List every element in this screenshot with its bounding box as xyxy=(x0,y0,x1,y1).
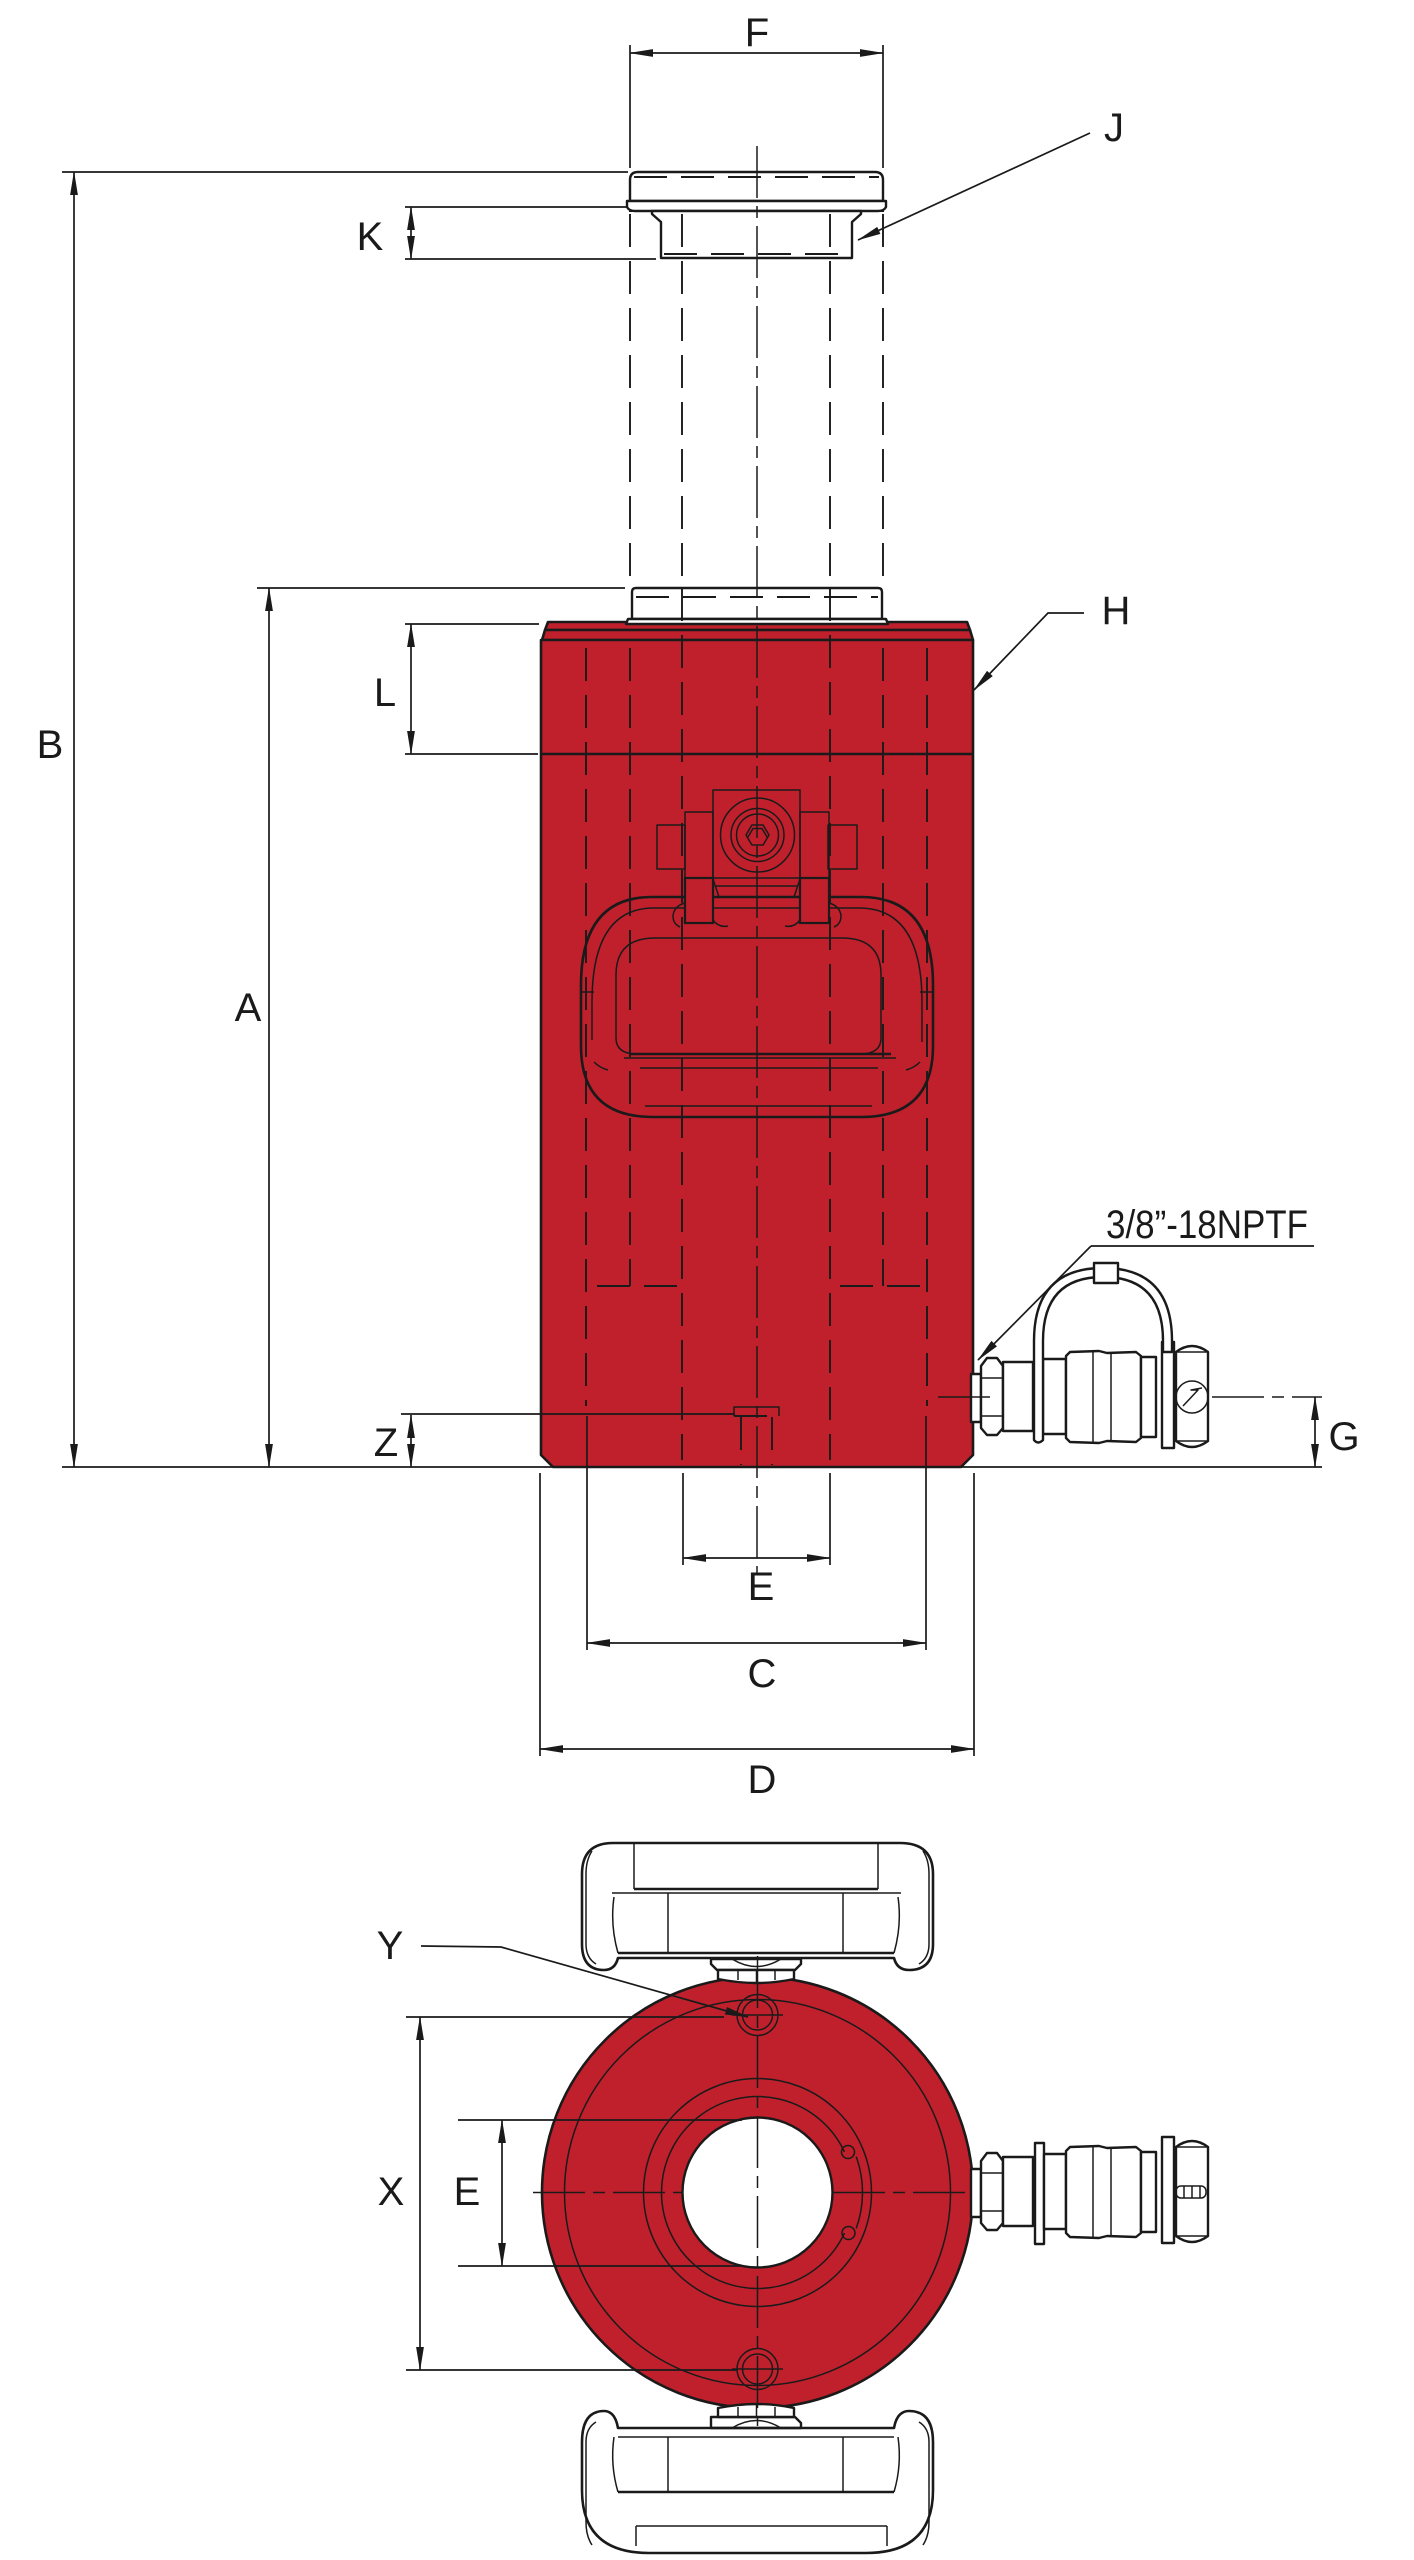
svg-text:F: F xyxy=(745,11,769,55)
svg-text:E: E xyxy=(454,2170,481,2214)
svg-text:D: D xyxy=(748,1758,777,1802)
svg-text:Y: Y xyxy=(377,1924,404,1968)
svg-text:A: A xyxy=(235,986,262,1030)
svg-text:Z: Z xyxy=(374,1421,398,1465)
svg-text:E: E xyxy=(748,1565,775,1609)
svg-text:K: K xyxy=(357,215,384,259)
svg-text:B: B xyxy=(37,723,64,767)
svg-text:X: X xyxy=(378,2170,405,2214)
svg-text:L: L xyxy=(374,671,396,715)
svg-text:J: J xyxy=(1104,106,1124,150)
svg-text:C: C xyxy=(748,1652,777,1696)
svg-text:H: H xyxy=(1102,589,1131,633)
svg-text:G: G xyxy=(1328,1415,1359,1459)
svg-text:3/8”-18NPTF: 3/8”-18NPTF xyxy=(1106,1203,1308,1247)
